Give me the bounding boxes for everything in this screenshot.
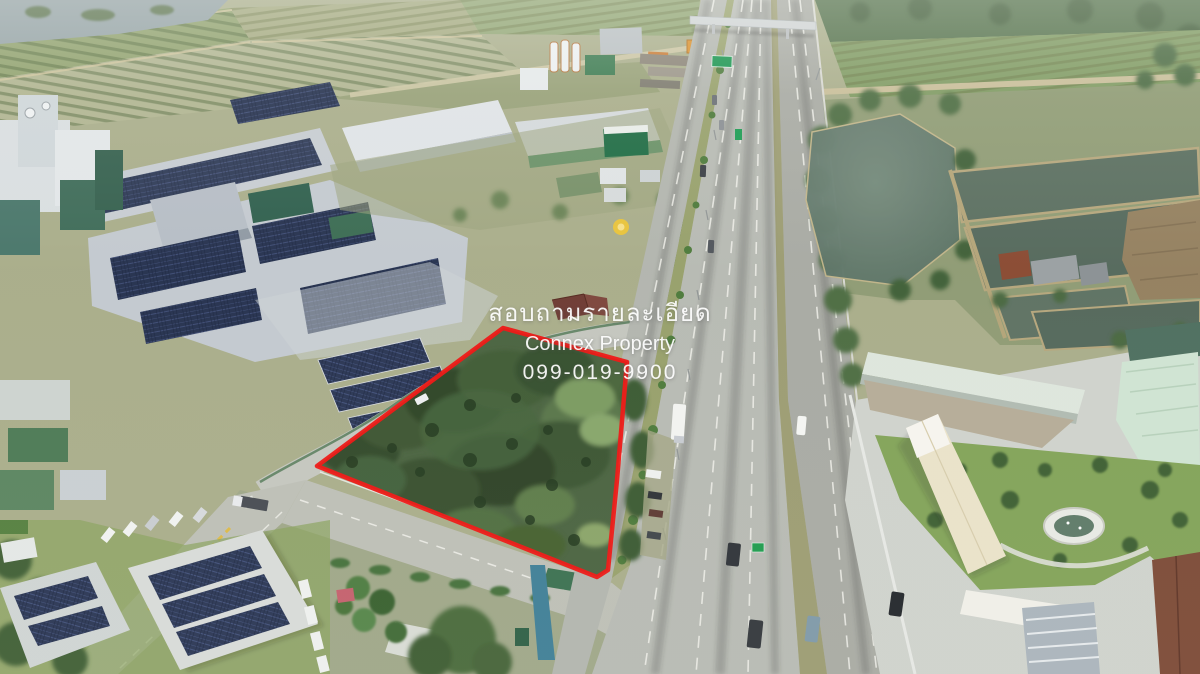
aerial-photo-container: สอบถามรายละเอียด Connex Property 099-019… [0, 0, 1200, 674]
atmospheric-haze [0, 0, 1200, 674]
aerial-photo [0, 0, 1200, 674]
